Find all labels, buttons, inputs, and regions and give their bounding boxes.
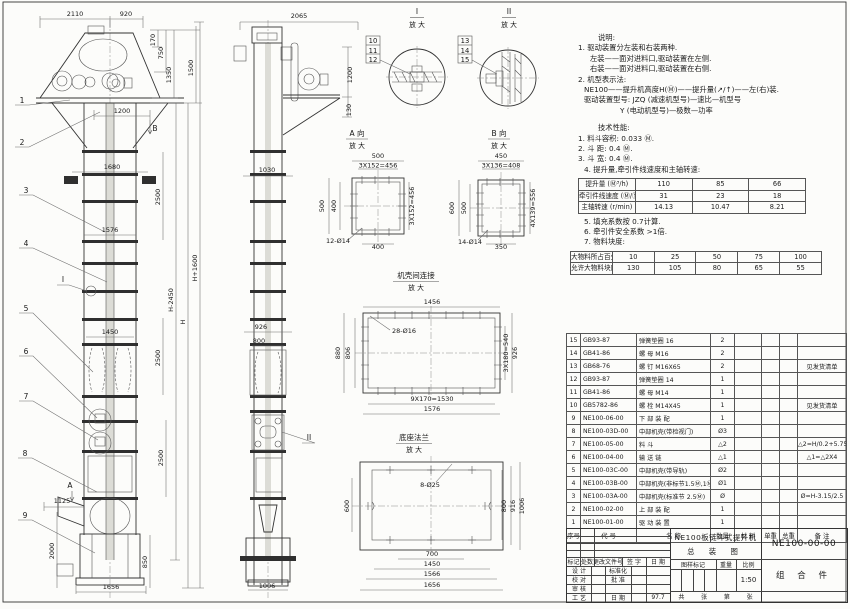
dim-label: II (507, 7, 511, 16)
table-cell: 螺 钉 M16X65 (637, 360, 711, 373)
table-cell (735, 347, 762, 360)
table-cell (780, 386, 798, 399)
sheet-count-row: 共 张 第 张 (670, 591, 761, 602)
table-cell (798, 347, 847, 360)
dim-label: 130 (345, 104, 353, 116)
role-check: 校 对 (567, 575, 591, 584)
tech-line: 3. 斗 宽: 0.4 Ⓜ. (568, 154, 848, 164)
title-block: 标记 处数 更改文件号 签 字 日 期 设 计 标准化 校 对 批 准 审 核 … (566, 528, 848, 603)
dim-label: 2500 (154, 189, 162, 206)
note-line: NE100——提升机高度H(Ⓜ)——提升量(↗/↑)——左(右)装. (568, 85, 848, 95)
drawing-sheet: 2110920170750135015001200B168025001576H+… (0, 0, 850, 609)
table-cell: 65 (738, 263, 780, 274)
dim-label: 500 (460, 202, 468, 214)
table-cell (780, 399, 798, 412)
table-cell (735, 477, 762, 490)
table-cell (780, 516, 798, 529)
dim-label: 12-Ø14 (326, 237, 350, 245)
dim-label: 600 (448, 202, 456, 214)
dim-label: 500 (372, 152, 384, 160)
table-cell (780, 334, 798, 347)
table-cell: 1 (711, 503, 735, 516)
table-cell: 3 (567, 490, 581, 503)
table-cell: 11 (567, 386, 581, 399)
weight-label: 重量 (716, 559, 737, 570)
dim-label: 机壳间连接 (397, 270, 435, 280)
table-cell: 中部机壳(标准节 2.5Ⓜ) (637, 490, 711, 503)
table-row: 9NE100-06-00下 部 装 配1 (567, 412, 847, 425)
table-cell: GB93-87 (581, 334, 637, 347)
parts-list: 15GB93-87弹簧垫圈 16214GB41-86螺 母 M16213GB68… (566, 333, 847, 543)
dim-label: 2500 (157, 450, 165, 467)
view-marker: II (307, 433, 311, 442)
note-line: 驱动装置型号: JZQ (减速机型号)—速比—机型号 (568, 95, 848, 105)
table-cell (762, 477, 780, 490)
dim-label: 9X170=1530 (411, 395, 454, 403)
tech-line: 6. 牵引件安全系数 >1倍. (568, 227, 848, 237)
table-cell: 螺 母 M14 (637, 386, 711, 399)
table-cell (798, 464, 847, 477)
notes-title: 说明: (568, 33, 848, 43)
part-balloon: 2 (20, 138, 25, 147)
dim-label: 2110 (67, 10, 84, 18)
tech-line: 1. 料斗容积: 0.033 Ⓜ. (568, 134, 848, 144)
dim-label: 2065 (291, 12, 308, 20)
note-line: 1. 驱动装置分左装和右装两种. (568, 43, 848, 53)
dim-label: 13 (461, 37, 470, 45)
table-cell (735, 438, 762, 451)
table-cell (735, 464, 762, 477)
table-cell: 螺 栓 M14X45 (637, 399, 711, 412)
table-cell (762, 334, 780, 347)
table-row: 牵引件线速度 (Ⓜ/Ⓢ)312318 (579, 190, 806, 201)
table-cell: △1=△2X4 (798, 451, 847, 464)
drawing-title-line2: 总 装 图 (687, 546, 744, 557)
front-view (36, 20, 184, 598)
table-cell: 15 (567, 334, 581, 347)
table-cell (735, 360, 762, 373)
sheet-word: 共 (678, 592, 684, 601)
sheet-word: 张 (701, 592, 707, 601)
dim-label: 14-Ø14 (458, 238, 482, 246)
table-row: 8NE100-03D-00中部机壳(带检视门)Ø3 (567, 425, 847, 438)
note-line: 左装——面对进料口,驱动装置在左侧. (568, 54, 848, 64)
table-cell: 23 (692, 190, 749, 201)
table-cell: 中部机壳(非标节1.5Ⓜ,1Ⓜ) (637, 477, 711, 490)
table-row: 10GB5782-86螺 栓 M14X451见发货清单 (567, 399, 847, 412)
role-date-label: 日 期 (605, 593, 631, 602)
table-cell: 2 (711, 347, 735, 360)
table-cell (735, 503, 762, 516)
table-cell (780, 360, 798, 373)
dim-label: 1200 (114, 107, 131, 115)
side-view (234, 20, 340, 598)
table-cell: 100 (780, 251, 822, 262)
table-cell (780, 464, 798, 477)
table-cell: 弹簧垫圈 16 (637, 334, 711, 347)
dim-label: 1576 (424, 405, 441, 413)
dim-label: 926 (255, 323, 267, 331)
table-cell: 提升量 (Ⓜ³/h) (579, 179, 636, 190)
dim-label: 1450 (424, 560, 441, 568)
table-cell: GB41-86 (581, 347, 637, 360)
table-cell: 66 (749, 179, 806, 190)
detail-II (458, 18, 539, 110)
table-cell (762, 451, 780, 464)
table-cell (798, 477, 847, 490)
dim-label: 12 (369, 56, 378, 64)
dim-label: 2000 (48, 543, 56, 560)
table-cell: 12 (567, 373, 581, 386)
table-cell: 中部机壳(带检视门) (637, 425, 711, 438)
table-cell (780, 490, 798, 503)
dim-label: 400 (330, 200, 338, 212)
dim-label: 750 (157, 47, 165, 59)
table-row: 允许大物料块度 (ⓂⓂ)130105806555 (571, 263, 822, 274)
dim-label: 1450 (102, 328, 119, 336)
table-cell: 2 (567, 503, 581, 516)
table-row: 3NE100-03A-00中部机壳(标准节 2.5Ⓜ)ØØ=H-3.15/2.5 (567, 490, 847, 503)
table-cell: Ø3 (711, 425, 735, 438)
table-cell: 10 (567, 399, 581, 412)
table-cell (735, 425, 762, 438)
performance-table: 提升量 (Ⓜ³/h)1108566牵引件线速度 (Ⓜ/Ⓢ)312318主轴转速 … (578, 178, 806, 213)
table-cell (762, 516, 780, 529)
table-cell: 130 (612, 263, 654, 274)
sheet-word: 第 (724, 592, 730, 601)
table-cell (735, 373, 762, 386)
role-process: 工 艺 (567, 593, 591, 602)
table-row: 12GB93-87弹簧垫圈 141 (567, 373, 847, 386)
dim-label: 1006 (518, 498, 526, 515)
tech-line: 5. 填充系数按 0.7计算. (568, 217, 848, 227)
table-cell: 1 (711, 386, 735, 399)
part-balloon: 7 (24, 392, 29, 401)
dim-label: 4X139=556 (529, 189, 537, 228)
part-balloon: 4 (24, 239, 29, 248)
tech-title: 技术性能: (568, 123, 848, 133)
table-cell: GB41-86 (581, 386, 637, 399)
part-balloon: 3 (24, 186, 29, 195)
dim-label: 28-Ø16 (392, 327, 416, 335)
table-cell: △2 (711, 438, 735, 451)
part-balloon: 8 (23, 449, 28, 458)
scale-value: 1:50 (736, 569, 761, 591)
table-cell: 牵引件线速度 (Ⓜ/Ⓢ) (579, 190, 636, 201)
rev-header: 日 期 (646, 557, 670, 567)
role-audit: 审 核 (567, 584, 591, 593)
table-cell (762, 503, 780, 516)
dim-label: 1566 (424, 570, 441, 578)
table-cell: 13 (567, 360, 581, 373)
number-zone: NE100-00-00 组 合 件 (761, 529, 847, 602)
table-cell: 31 (635, 190, 692, 201)
table-cell: 料 斗 (637, 438, 711, 451)
table-cell: 螺 母 M16 (637, 347, 711, 360)
table-row: 1NE100-01-00驱 动 装 置1 (567, 516, 847, 529)
table-cell (735, 516, 762, 529)
table-row: 11GB41-86螺 母 M141 (567, 386, 847, 399)
dim-label: 1200 (346, 67, 354, 84)
tech-line: 4. 提升量,牵引件线速度和主轴转速: (568, 165, 848, 175)
table-cell: 见发货清单 (798, 360, 847, 373)
dim-label: 350 (495, 243, 507, 251)
table-cell (735, 451, 762, 464)
dim-label: 920 (120, 10, 132, 18)
notes-block: 说明: 1. 驱动装置分左装和右装两种. 左装——面对进料口,驱动装置在左侧. … (568, 33, 848, 278)
table-cell (780, 438, 798, 451)
dim-label: 1006 (259, 582, 276, 590)
table-cell: 主轴转速 (r/min) (579, 202, 636, 213)
table-cell: 见发货清单 (798, 399, 847, 412)
dim-label: 1656 (103, 583, 120, 591)
dim-label: 3X152=456 (408, 187, 416, 226)
table-cell: 25 (654, 251, 696, 262)
table-row: 大物料所占百分比 (%)10255075100 (571, 251, 822, 262)
table-cell (735, 386, 762, 399)
dim-label: 3X136=408 (482, 162, 521, 170)
dim-label: A 向 (349, 128, 364, 138)
table-cell: 弹簧垫圈 14 (637, 373, 711, 386)
table-cell (762, 347, 780, 360)
table-cell (798, 334, 847, 347)
table-cell (798, 516, 847, 529)
table-cell: 1 (567, 516, 581, 529)
dim-label: 1500 (187, 60, 195, 77)
table-row: 提升量 (Ⓜ³/h)1108566 (579, 179, 806, 190)
dim-label: B 向 (491, 128, 506, 138)
table-cell (780, 425, 798, 438)
table-row: 5NE100-03C-00中部机壳(带导轨)Ø2 (567, 464, 847, 477)
table-cell (762, 360, 780, 373)
view-marker: I (62, 275, 64, 284)
dim-label: 926 (511, 347, 519, 359)
table-cell: 6 (567, 451, 581, 464)
table-cell: 10.47 (692, 202, 749, 213)
platform-bracket-left (64, 176, 78, 184)
tech-line: 2. 斗 距: 0.4 Ⓜ. (568, 144, 848, 154)
table-cell: 5 (567, 464, 581, 477)
table-cell (762, 425, 780, 438)
dim-label: 放 大 (501, 20, 517, 29)
view-marker: B (152, 124, 157, 133)
table-cell: 1 (711, 412, 735, 425)
drawing-number: NE100-00-00 (772, 539, 837, 549)
table-cell: 4 (567, 477, 581, 490)
table-cell: 75 (738, 251, 780, 262)
titleblock-date: 97.7 (646, 593, 670, 602)
table-cell: Ø2 (711, 464, 735, 477)
table-cell: NE100-03A-00 (581, 490, 637, 503)
table-cell (762, 386, 780, 399)
dim-label: 底座法兰 (399, 432, 429, 442)
table-cell: 允许大物料块度 (ⓂⓂ) (571, 263, 613, 274)
table-cell (762, 464, 780, 477)
table-cell: 驱 动 装 置 (637, 516, 711, 529)
table-cell: 110 (635, 179, 692, 190)
dim-label: 10 (369, 37, 378, 45)
table-cell: 14 (567, 347, 581, 360)
table-row: 13GB68-76螺 钉 M16X652见发货清单 (567, 360, 847, 373)
table-cell: Ø1 (711, 477, 735, 490)
revision-zone: 标记 处数 更改文件号 签 字 日 期 设 计 标准化 校 对 批 准 审 核 … (567, 529, 671, 602)
table-cell (780, 347, 798, 360)
table-row: 7NE100-05-00料 斗△2△2=H/0.2+5.75 (567, 438, 847, 451)
table-cell: NE100-03D-00 (581, 425, 637, 438)
dim-label: H (179, 319, 187, 324)
note-line: 右装——面对进料口,驱动装置在右侧. (568, 64, 848, 74)
detail-base-flange (352, 444, 512, 557)
dim-label: 1030 (259, 166, 276, 174)
dim-label: 850 (141, 556, 149, 568)
dim-label: H+1600 (191, 255, 199, 282)
table-cell: 85 (692, 179, 749, 190)
annotations: 2110920170750135015001200B168025001576H+… (20, 7, 537, 591)
dim-label: 3X152=456 (359, 162, 398, 170)
part-balloon: 9 (23, 511, 28, 520)
platform-bracket-right (142, 176, 156, 184)
dim-label: 11 (369, 47, 378, 55)
role-standardization: 标准化 (605, 566, 631, 575)
table-cell (762, 399, 780, 412)
table-cell: 下 部 装 配 (637, 412, 711, 425)
table-cell: Ø=H-3.15/2.5 (798, 490, 847, 503)
dim-label: 8-Ø25 (420, 481, 440, 489)
dim-label: 1125 (54, 497, 71, 505)
dim-label: 放 大 (406, 445, 422, 454)
table-cell (798, 386, 847, 399)
table-cell (762, 490, 780, 503)
dim-label: 450 (495, 152, 507, 160)
table-cell: 中部机壳(带导轨) (637, 464, 711, 477)
table-cell: 18 (749, 190, 806, 201)
table-cell: GB68-76 (581, 360, 637, 373)
dim-label: 放 大 (408, 283, 424, 292)
dim-label: 170 (149, 34, 157, 46)
dim-label: 放 大 (409, 20, 425, 29)
dim-label: 1456 (424, 298, 441, 306)
table-row: 6NE100-04-00输 送 链△1△1=△2X4 (567, 451, 847, 464)
dim-label: 800 (500, 500, 508, 512)
dim-label: 600 (343, 500, 351, 512)
drawing-title-line1: NE100板链斗式提升机 (674, 532, 756, 543)
dim-label: I (416, 7, 418, 16)
table-cell: 2 (711, 334, 735, 347)
table-cell: NE100-02-00 (581, 503, 637, 516)
table-cell: 8 (567, 425, 581, 438)
table-cell: △1 (711, 451, 735, 464)
table-cell: GB93-87 (581, 373, 637, 386)
table-cell: 80 (696, 263, 738, 274)
table-cell: NE100-01-00 (581, 516, 637, 529)
dim-label: 3X180=540 (502, 334, 510, 373)
part-balloon: 1 (20, 96, 25, 105)
table-cell: GB5782-86 (581, 399, 637, 412)
dim-label: 400 (372, 243, 384, 251)
role-approve: 批 准 (605, 575, 631, 584)
table-cell (798, 373, 847, 386)
table-cell (735, 399, 762, 412)
dim-label: 800 (253, 337, 265, 345)
table-cell: 1 (711, 373, 735, 386)
table-row: 2NE100-02-00上 部 装 配1 (567, 503, 847, 516)
part-type: 组 合 件 (776, 569, 832, 581)
table-cell (762, 373, 780, 386)
table-row: 15GB93-87弹簧垫圈 162 (567, 334, 847, 347)
note-line: 2. 机型表示法: (568, 75, 848, 85)
table-cell: NE100-03B-00 (581, 477, 637, 490)
table-cell: NE100-06-00 (581, 412, 637, 425)
table-cell (735, 412, 762, 425)
dim-label: 1576 (102, 226, 119, 234)
table-cell: 2 (711, 360, 735, 373)
dim-label: 700 (426, 550, 438, 558)
dim-label: 放 大 (349, 141, 365, 150)
table-cell: 9 (567, 412, 581, 425)
table-cell: 大物料所占百分比 (%) (571, 251, 613, 262)
dim-label: 806 (344, 347, 352, 359)
dim-label: H-2450 (167, 288, 175, 312)
table-cell: NE100-05-00 (581, 438, 637, 451)
dim-label: 1350 (165, 67, 173, 84)
table-cell (780, 412, 798, 425)
table-cell: NE100-03C-00 (581, 464, 637, 477)
part-balloon: 6 (24, 347, 29, 356)
dim-label: 2500 (154, 350, 162, 367)
table-cell: 上 部 装 配 (637, 503, 711, 516)
table-cell: NE100-04-00 (581, 451, 637, 464)
view-marker: A (67, 481, 73, 490)
dim-label: 1656 (424, 581, 441, 589)
dim-label: 放 大 (491, 141, 507, 150)
dim-label: 1680 (104, 163, 121, 171)
table-cell: 1 (711, 399, 735, 412)
table-cell (762, 412, 780, 425)
tech-line: 7. 物料块度: (568, 237, 848, 247)
table-cell: 55 (780, 263, 822, 274)
table-cell (798, 503, 847, 516)
table-cell: 7 (567, 438, 581, 451)
sheet-word: 张 (747, 592, 753, 601)
title-zone: NE100板链斗式提升机 总 装 图 图样标记 重量 比例 1:50 共 张 第… (670, 529, 762, 602)
table-cell (798, 425, 847, 438)
table-cell (780, 373, 798, 386)
table-cell: 50 (696, 251, 738, 262)
table-cell: 14.13 (635, 202, 692, 213)
lump-size-table: 大物料所占百分比 (%)10255075100允许大物料块度 (ⓂⓂ)13010… (570, 251, 822, 275)
table-cell: △2=H/0.2+5.75 (798, 438, 847, 451)
table-row: 14GB41-86螺 母 M162 (567, 347, 847, 360)
table-cell: Ø (711, 490, 735, 503)
table-cell: 10 (612, 251, 654, 262)
table-row: 主轴转速 (r/min)14.1310.478.21 (579, 202, 806, 213)
table-cell (735, 490, 762, 503)
dim-label: 500 (318, 200, 326, 212)
table-cell: 105 (654, 263, 696, 274)
dim-label: 15 (461, 56, 470, 64)
table-cell (780, 477, 798, 490)
dim-label: 916 (509, 500, 517, 512)
table-row: 4NE100-03B-00中部机壳(非标节1.5Ⓜ,1Ⓜ)Ø1 (567, 477, 847, 490)
table-cell (735, 334, 762, 347)
table-cell (780, 451, 798, 464)
role-design: 设 计 (567, 566, 591, 575)
part-balloon: 5 (24, 304, 29, 313)
table-cell: 1 (711, 516, 735, 529)
table-cell (762, 438, 780, 451)
dim-label: 880 (334, 347, 342, 359)
detail-I (366, 18, 448, 109)
